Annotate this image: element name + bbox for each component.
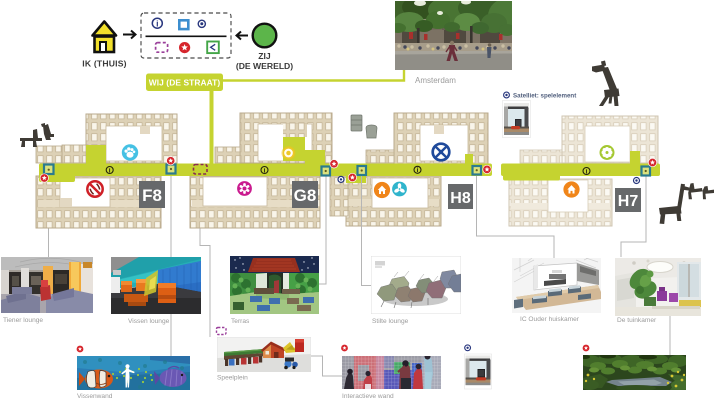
svg-text:H8: H8 <box>450 190 471 207</box>
svg-text:Tiener lounge: Tiener lounge <box>3 317 43 324</box>
svg-text:i: i <box>156 19 158 29</box>
svg-text:Interactieve wand: Interactieve wand <box>342 393 394 400</box>
svg-text:F8: F8 <box>142 186 162 205</box>
svg-text:ZIJ: ZIJ <box>258 51 271 61</box>
svg-text:De tuinkamer: De tuinkamer <box>617 317 657 324</box>
svg-text:Vissen lounge: Vissen lounge <box>128 318 170 325</box>
svg-text:IC Ouder huiskamer: IC Ouder huiskamer <box>520 316 580 323</box>
svg-text:(DE WERELD): (DE WERELD) <box>236 61 293 71</box>
svg-text:H7: H7 <box>618 193 639 210</box>
svg-text:G8: G8 <box>294 186 317 205</box>
svg-text:i: i <box>417 167 419 174</box>
svg-text:i: i <box>586 168 588 175</box>
svg-text:IK (THUIS): IK (THUIS) <box>82 59 127 69</box>
svg-text:Satelliet: spelelement: Satelliet: spelelement <box>513 93 576 100</box>
svg-text:Stilte lounge: Stilte lounge <box>372 318 409 325</box>
svg-text:i: i <box>109 167 111 174</box>
svg-text:Speelplein: Speelplein <box>217 375 248 382</box>
svg-text:Terras: Terras <box>231 318 250 325</box>
svg-text:Vissenwand: Vissenwand <box>77 393 113 400</box>
svg-text:WIJ (DE STRAAT): WIJ (DE STRAAT) <box>149 77 221 87</box>
svg-text:i: i <box>264 167 266 174</box>
svg-text:Amsterdam: Amsterdam <box>415 76 456 85</box>
